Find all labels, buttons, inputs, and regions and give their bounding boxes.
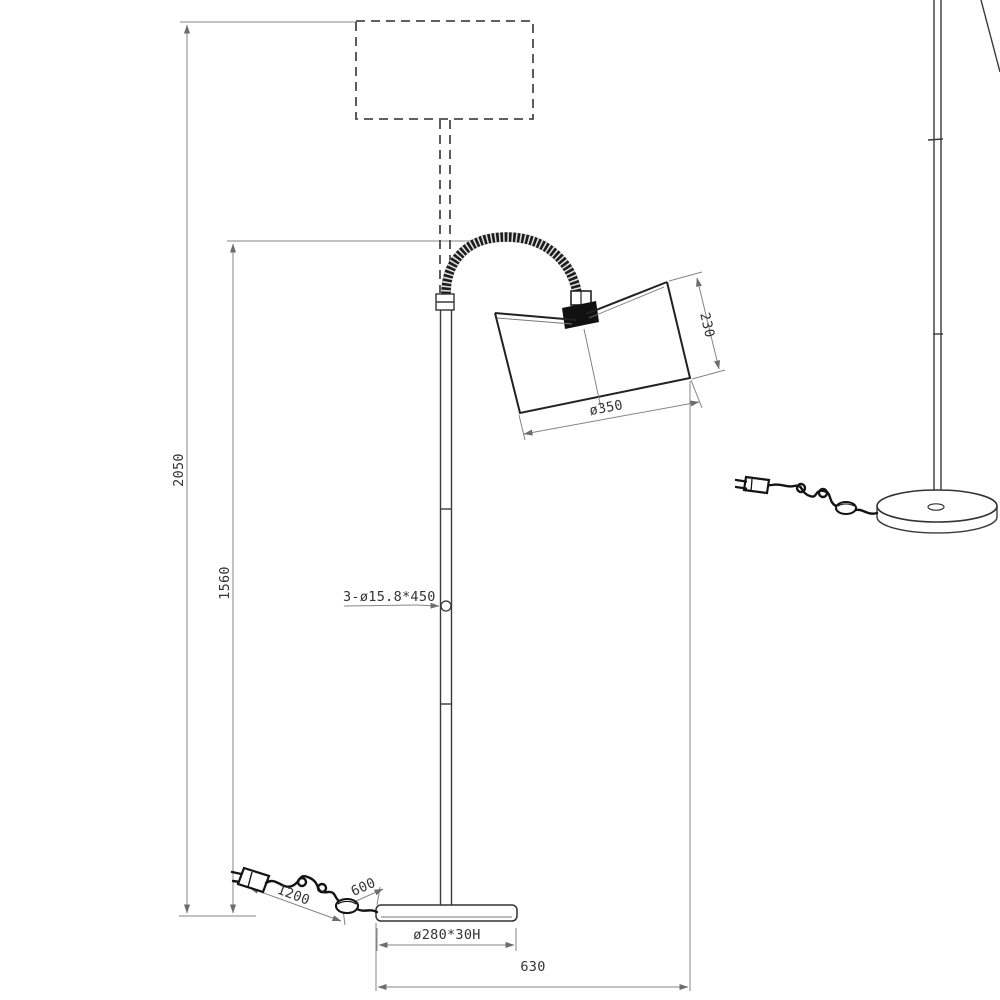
tube-spec-label: 3-ø15.8*450 xyxy=(343,589,436,605)
dim-overall-height-label: 2050 xyxy=(171,453,187,487)
dim-cable-switch-base-label: 600 xyxy=(349,875,379,900)
base-spec-label: ø280*30H xyxy=(413,927,480,943)
side-power-plug-icon xyxy=(736,477,769,493)
gooseneck-arm xyxy=(436,237,578,310)
side-power-cord xyxy=(736,477,877,514)
dim-stand-height-label: 1560 xyxy=(217,566,233,600)
side-foot-switch-icon xyxy=(836,502,856,514)
foot-switch-icon xyxy=(336,899,358,913)
dashed-shade-outline xyxy=(356,21,533,293)
side-pole xyxy=(928,0,1000,502)
drawing-canvas: 2050 1560 3-ø15.8*450 230 ø350 1200 600 … xyxy=(0,0,1000,1000)
side-base xyxy=(877,490,997,533)
perspective-view xyxy=(736,0,1000,533)
power-plug-icon xyxy=(232,868,269,892)
dim-cable-plug-switch-label: 1200 xyxy=(275,882,312,909)
lamp-pole xyxy=(440,310,452,905)
dim-shade-depth-label: 230 xyxy=(696,311,717,339)
main-view xyxy=(232,21,690,921)
lamp-base xyxy=(376,905,517,921)
lamp-technical-drawing: 2050 1560 3-ø15.8*450 230 ø350 1200 600 … xyxy=(0,0,1000,1000)
dim-shade-diameter-label: ø350 xyxy=(588,397,624,419)
pole-screw-joint xyxy=(441,601,451,611)
lamp-shade xyxy=(495,282,690,413)
dim-reach-label: 630 xyxy=(520,959,545,975)
